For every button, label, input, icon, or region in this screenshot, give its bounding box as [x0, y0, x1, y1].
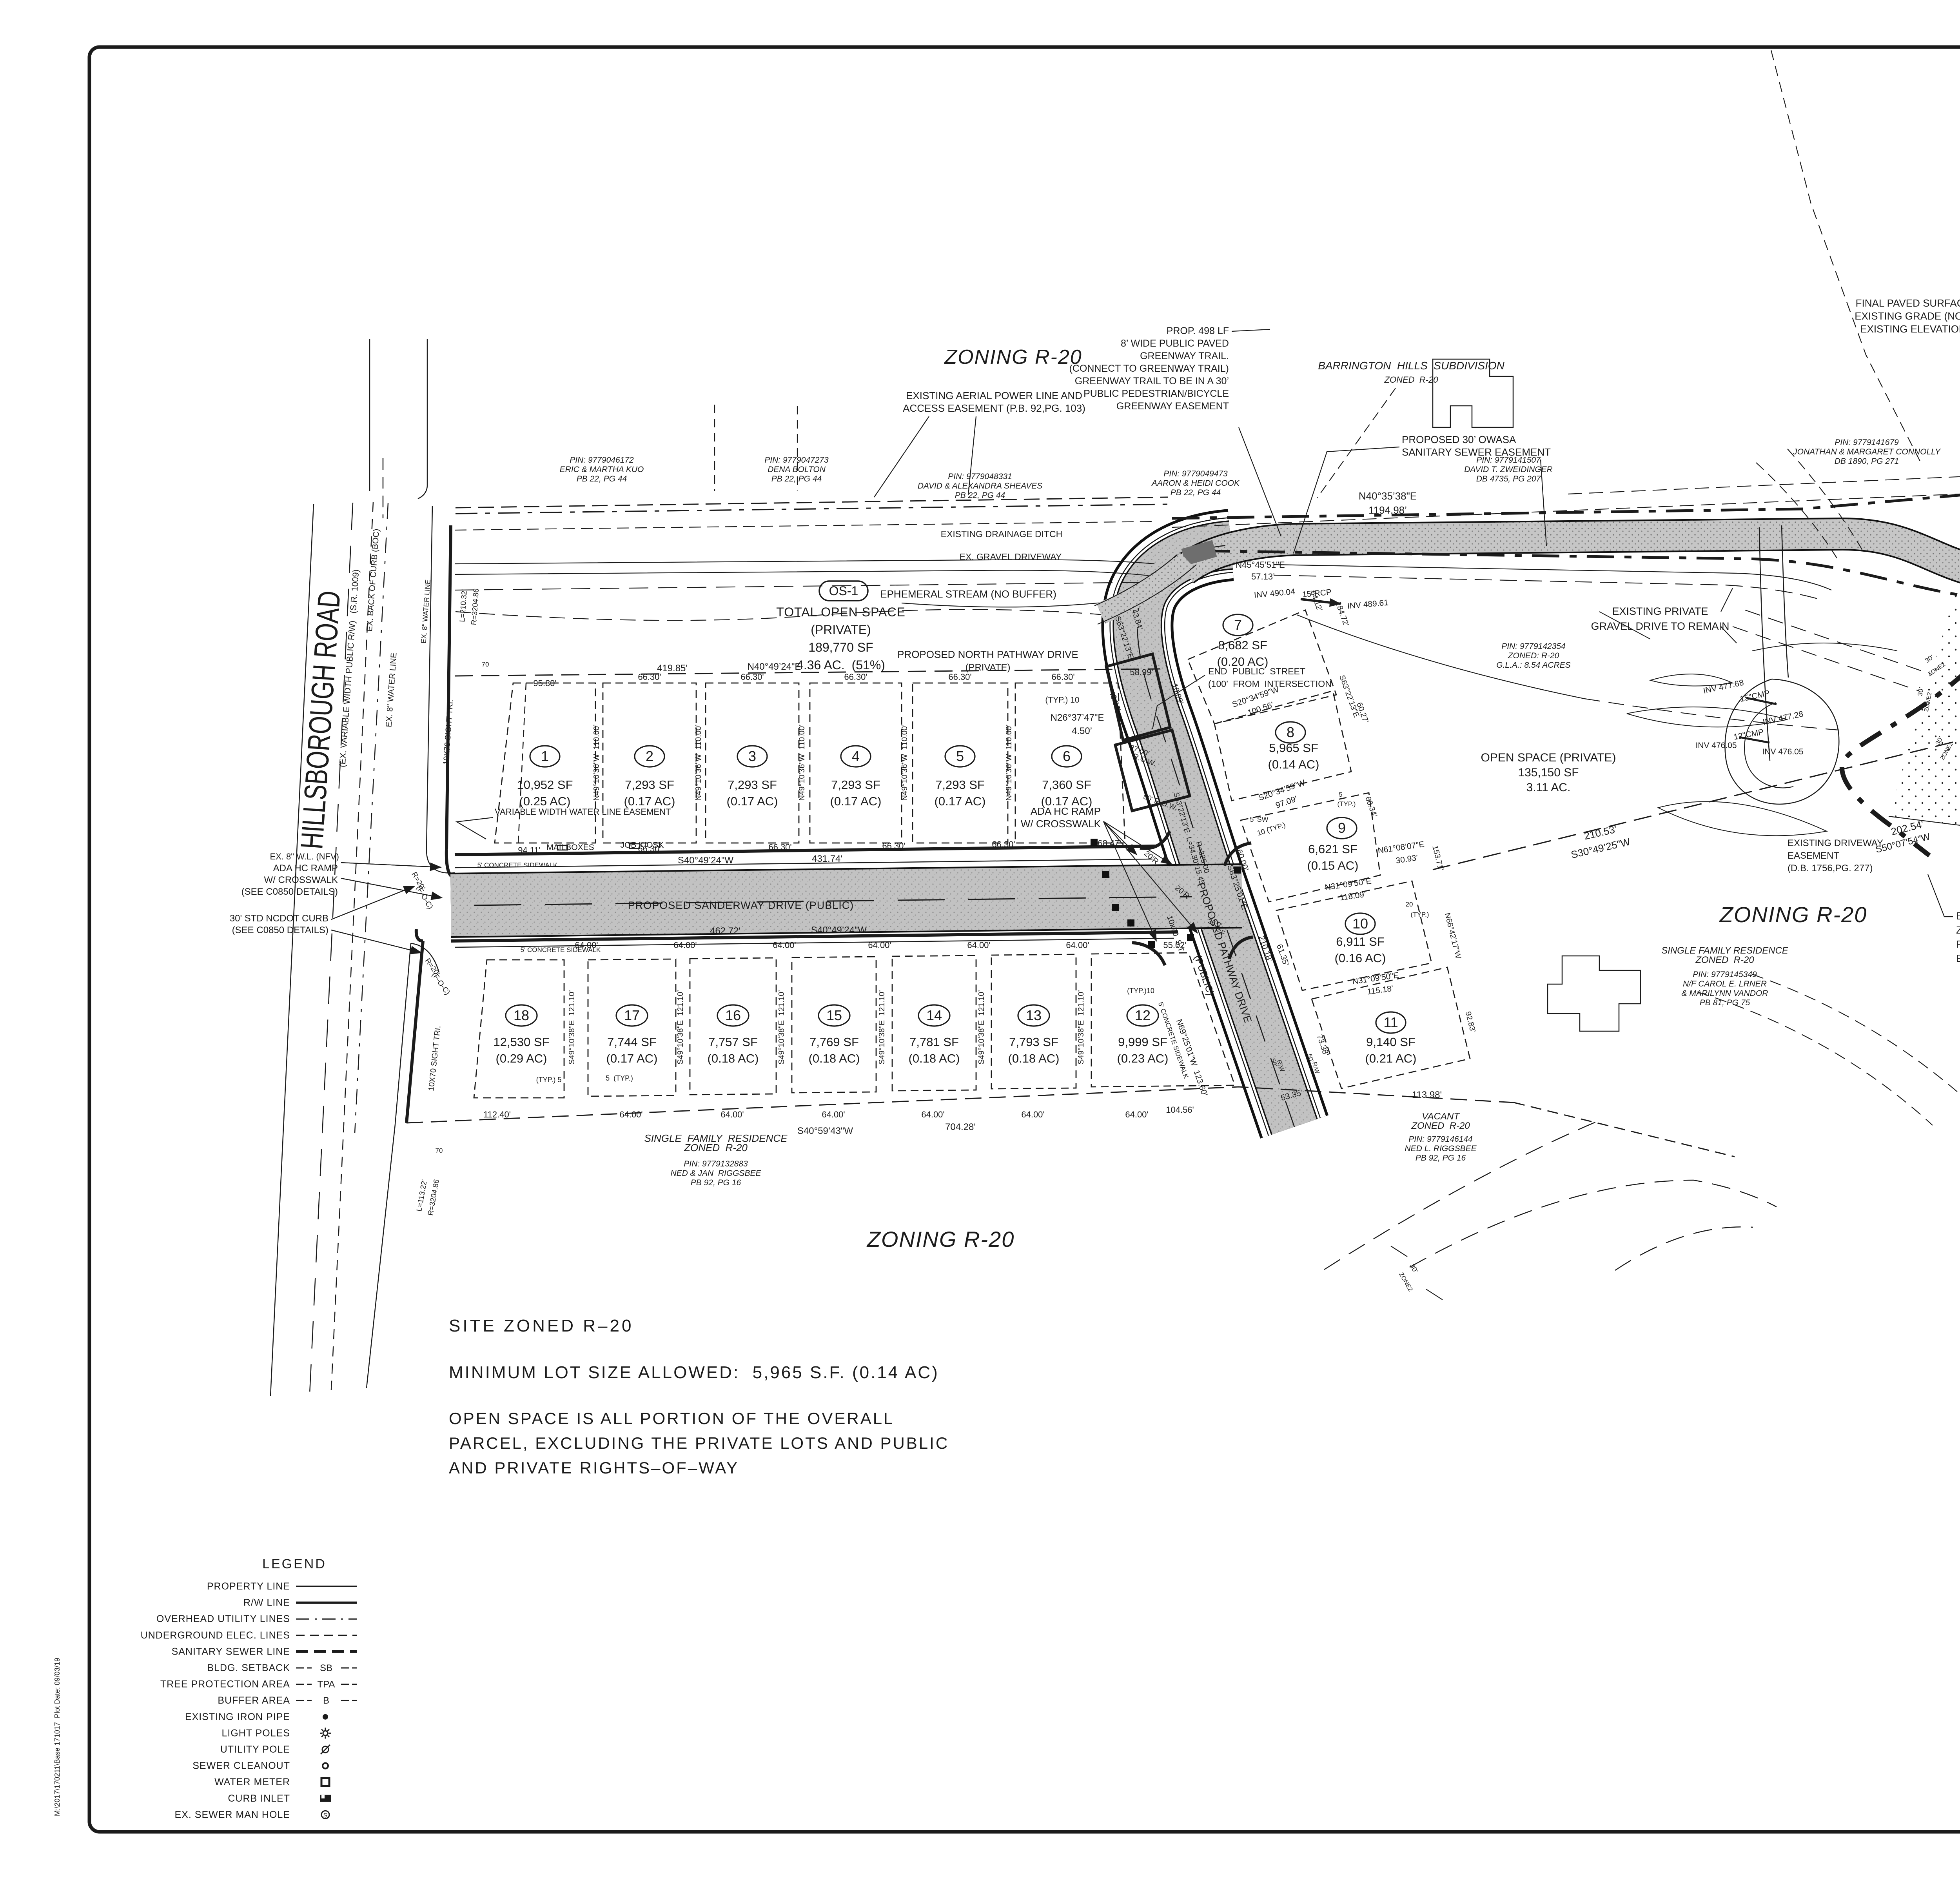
svg-text:(0.14 AC): (0.14 AC)	[1268, 758, 1319, 771]
svg-text:MINIMUM LOT SIZE ALLOWED: 5,9: MINIMUM LOT SIZE ALLOWED: 5,965 S.F. (0.…	[449, 1363, 939, 1382]
svg-text:112.40': 112.40'	[483, 1110, 511, 1119]
svg-text:64.00': 64.00'	[868, 940, 891, 950]
svg-text:PIN: 9779048331: PIN: 9779048331	[948, 472, 1012, 481]
svg-text:(0.16 AC): (0.16 AC)	[1335, 951, 1386, 965]
svg-text:PROP. 498 LF: PROP. 498 LF	[1167, 325, 1229, 336]
svg-text:(0.18 AC): (0.18 AC)	[708, 1052, 759, 1065]
svg-text:DENA BOLTON: DENA BOLTON	[768, 465, 826, 474]
svg-text:M:\2017\170211\Base 171017 Pl: M:\2017\170211\Base 171017 Plot Date: 09…	[53, 1658, 61, 1816]
svg-text:9,140 SF: 9,140 SF	[1366, 1035, 1416, 1049]
svg-text:64.00': 64.00'	[720, 1110, 744, 1119]
svg-text:8’ WIDE PUBLIC PAVED: 8’ WIDE PUBLIC PAVED	[1121, 338, 1229, 349]
svg-text:3.11 AC.: 3.11 AC.	[1526, 781, 1571, 794]
svg-text:66.30': 66.30'	[740, 672, 764, 682]
svg-text:94.11': 94.11'	[518, 845, 541, 855]
svg-text:64.00': 64.00'	[1125, 1110, 1148, 1119]
svg-text:104.56': 104.56'	[1166, 1105, 1194, 1115]
svg-text:70: 70	[436, 1147, 443, 1154]
svg-text:SANITARY SEWER EASEMENT: SANITARY SEWER EASEMENT	[1402, 446, 1551, 458]
svg-text:5' CONCRETE SIDEWALK: 5' CONCRETE SIDEWALK	[477, 861, 558, 869]
svg-text:OVERHEAD UTILITY LINES: OVERHEAD UTILITY LINES	[156, 1613, 290, 1624]
svg-text:N40°35’38"E: N40°35’38"E	[1359, 490, 1417, 502]
svg-text:G.L.A.: 8.54 ACRES: G.L.A.: 8.54 ACRES	[1496, 661, 1570, 670]
svg-text:GREENWAY TRAIL.: GREENWAY TRAIL.	[1140, 351, 1229, 362]
svg-text:7,793 SF: 7,793 SF	[1009, 1035, 1058, 1049]
svg-text:UTILITY POLE: UTILITY POLE	[220, 1744, 290, 1755]
svg-text:(TYP.) 5: (TYP.) 5	[536, 1076, 562, 1084]
svg-text:PARCEL, EXCLUDING THE PRIVATE: PARCEL, EXCLUDING THE PRIVATE LOTS AND P…	[449, 1434, 949, 1452]
svg-text:S49°10’38"E 121.10’: S49°10’38"E 121.10’	[777, 990, 786, 1065]
svg-text:(TYP.)10: (TYP.)10	[1127, 987, 1154, 995]
svg-text:PB 92, PG 16: PB 92, PG 16	[691, 1178, 741, 1187]
svg-text:4.50’: 4.50’	[1072, 726, 1092, 736]
svg-text:(0.17 AC): (0.17 AC)	[935, 794, 986, 808]
svg-text:30’: 30’	[1916, 687, 1925, 697]
svg-text:12,530 SF: 12,530 SF	[493, 1035, 549, 1049]
svg-text:AARON & HEIDI COOK: AARON & HEIDI COOK	[1151, 479, 1240, 488]
svg-text:PROPOSED SANDERWAY DRIVE (PUBL: PROPOSED SANDERWAY DRIVE (PUBLIC)	[628, 899, 854, 911]
svg-text:(D.B. 1756,PG. 277): (D.B. 1756,PG. 277)	[1788, 863, 1873, 874]
svg-text:(0.17 AC): (0.17 AC)	[830, 794, 882, 808]
svg-text:5' CONCRETE SIDEWALK: 5' CONCRETE SIDEWALK	[521, 946, 601, 954]
svg-text:DAVID & ALEXANDRA SHEAVES: DAVID & ALEXANDRA SHEAVES	[918, 481, 1042, 490]
svg-text:PIN: 9779145349: PIN: 9779145349	[1693, 970, 1757, 979]
svg-text:30' STD NCDOT CURB: 30' STD NCDOT CURB	[230, 913, 328, 924]
svg-text:& MARILYNN VANDOR: & MARILYNN VANDOR	[1682, 989, 1768, 998]
svg-text:PIN: 9779142354: PIN: 9779142354	[1501, 642, 1565, 651]
svg-text:9: 9	[1338, 820, 1346, 836]
svg-text:GRAVEL DRIVE TO REMAIN: GRAVEL DRIVE TO REMAIN	[1591, 620, 1729, 632]
svg-text:W/ CROSSWALK: W/ CROSSWALK	[264, 875, 338, 885]
svg-text:(TYP.) 10: (TYP.) 10	[1045, 696, 1079, 705]
svg-text:PIN: 9779046172: PIN: 9779046172	[570, 456, 634, 465]
svg-text:8,682 SF: 8,682 SF	[1218, 638, 1267, 652]
svg-text:UNDERGROUND ELEC. LINES: UNDERGROUND ELEC. LINES	[141, 1630, 290, 1641]
svg-text:PIN: 9779132883: PIN: 9779132883	[684, 1159, 748, 1168]
svg-text:ZONING R-20: ZONING R-20	[866, 1227, 1015, 1252]
svg-text:EXISTING DRAINAGE DITCH: EXISTING DRAINAGE DITCH	[941, 529, 1063, 539]
svg-text:ZONED R-20: ZONED R-20	[1695, 955, 1754, 965]
svg-text:BUFFER AREA: BUFFER AREA	[218, 1695, 290, 1706]
svg-text:N49°10’36"W 110.00’: N49°10’36"W 110.00’	[592, 725, 601, 801]
svg-text:(SEE C0850 DETAILS): (SEE C0850 DETAILS)	[241, 887, 338, 897]
svg-text:7,293 SF: 7,293 SF	[935, 778, 985, 792]
svg-text:PIN: 9779049473: PIN: 9779049473	[1163, 469, 1228, 478]
svg-text:(TYP.): (TYP.)	[1338, 800, 1356, 808]
svg-text:16: 16	[725, 1007, 741, 1023]
svg-text:7,769 SF: 7,769 SF	[809, 1035, 859, 1049]
svg-text:ZONING R-20: ZONING R-20	[1719, 902, 1867, 927]
svg-text:W/ CROSSWALK: W/ CROSSWALK	[1021, 818, 1101, 830]
svg-text:13: 13	[1026, 1007, 1042, 1023]
svg-text:419.85': 419.85'	[657, 663, 688, 674]
svg-text:95.80': 95.80'	[533, 678, 556, 688]
svg-text:LEGEND: LEGEND	[262, 1557, 327, 1571]
svg-text:(TYP.): (TYP.)	[1411, 911, 1429, 918]
svg-text:64.00': 64.00'	[773, 940, 796, 950]
svg-text:PUBLIC PEDESTRIAN/BICYCLE: PUBLIC PEDESTRIAN/BICYCLE	[1083, 388, 1229, 399]
svg-text:8: 8	[1287, 724, 1294, 740]
svg-text:15: 15	[826, 1007, 842, 1023]
svg-text:17: 17	[624, 1007, 640, 1023]
svg-text:(0.25 AC): (0.25 AC)	[519, 794, 571, 808]
svg-text:(0.18 AC): (0.18 AC)	[1008, 1052, 1060, 1065]
svg-text:(0.18 AC): (0.18 AC)	[909, 1052, 960, 1065]
svg-text:S40°49’24"W: S40°49’24"W	[678, 855, 734, 866]
svg-text:7,293 SF: 7,293 SF	[625, 778, 674, 792]
svg-text:20: 20	[1406, 901, 1413, 908]
svg-text:6: 6	[1063, 748, 1071, 764]
svg-text:66.30': 66.30'	[1051, 672, 1074, 682]
svg-text:(0.17 AC): (0.17 AC)	[727, 794, 778, 808]
svg-text:64.00': 64.00'	[673, 940, 697, 950]
svg-text:ZONED R-20: ZONED R-20	[1384, 375, 1439, 385]
svg-text:SB: SB	[320, 1663, 332, 1673]
svg-text:12: 12	[1135, 1007, 1151, 1023]
svg-text:ERIC & MARTHA KUO: ERIC & MARTHA KUO	[560, 465, 644, 474]
svg-text:2: 2	[646, 748, 653, 764]
svg-text:(0.29 AC): (0.29 AC)	[496, 1052, 547, 1065]
svg-text:ZONE AE; ELEV. 475.2: ZONE AE; ELEV. 475.2	[1956, 924, 1960, 936]
svg-text:4.36 AC. (51%): 4.36 AC. (51%)	[797, 658, 885, 672]
svg-text:BLDG. SETBACK: BLDG. SETBACK	[207, 1662, 290, 1673]
svg-text:JOB KIOSK: JOB KIOSK	[621, 841, 664, 850]
svg-text:EX. GRAVEL DRIVEWAY: EX. GRAVEL DRIVEWAY	[960, 552, 1062, 562]
svg-text:N49°10’36"W 110.00’: N49°10’36"W 110.00’	[694, 725, 703, 801]
svg-text:PB 22, PG 44: PB 22, PG 44	[955, 491, 1005, 500]
svg-text:ZONED R-20: ZONED R-20	[684, 1142, 748, 1154]
svg-text:3: 3	[748, 748, 756, 764]
svg-text:S49°10’38"E 121.10’: S49°10’38"E 121.10’	[676, 990, 685, 1065]
svg-text:DB 4735, PG 207: DB 4735, PG 207	[1476, 474, 1541, 483]
svg-text:SEWER CLEANOUT: SEWER CLEANOUT	[192, 1760, 290, 1771]
svg-text:JONATHAN & MARGARET CONNOLLY: JONATHAN & MARGARET CONNOLLY	[1793, 447, 1941, 456]
svg-text:PROPERTY LINE: PROPERTY LINE	[207, 1581, 290, 1592]
svg-text:66.30': 66.30'	[844, 672, 867, 682]
svg-text:PB 81, PG 75: PB 81, PG 75	[1700, 998, 1750, 1007]
svg-text:N26°37’47"E: N26°37’47"E	[1051, 712, 1104, 723]
svg-text:189,770 SF: 189,770 SF	[808, 640, 873, 654]
svg-text:EPHEMERAL STREAM (NO BUFFER): EPHEMERAL STREAM (NO BUFFER)	[880, 588, 1056, 600]
svg-text:7,360 SF: 7,360 SF	[1042, 778, 1091, 792]
svg-text:66.30': 66.30'	[992, 839, 1015, 849]
svg-text:DB 1890, PG 271: DB 1890, PG 271	[1835, 457, 1899, 466]
svg-text:N/F CAROL E. LRNER: N/F CAROL E. LRNER	[1683, 979, 1767, 988]
svg-text:57.13’: 57.13’	[1251, 572, 1275, 581]
svg-text:4: 4	[852, 748, 860, 764]
svg-text:66.30': 66.30'	[882, 841, 905, 851]
svg-text:704.28': 704.28'	[945, 1122, 976, 1132]
svg-text:462.72': 462.72'	[710, 926, 740, 936]
svg-text:EXISTING AERIAL POWER LINE AND: EXISTING AERIAL POWER LINE AND	[906, 390, 1082, 401]
svg-text:GREENWAY TRAIL TO BE IN A 30’: GREENWAY TRAIL TO BE IN A 30’	[1075, 376, 1229, 387]
svg-text:7,757 SF: 7,757 SF	[708, 1035, 758, 1049]
svg-text:64.00': 64.00'	[967, 940, 990, 950]
svg-text:7,293 SF: 7,293 SF	[831, 778, 880, 792]
svg-text:7,781 SF: 7,781 SF	[909, 1035, 959, 1049]
svg-text:OPEN SPACE IS ALL PORTION OF T: OPEN SPACE IS ALL PORTION OF THE OVERALL	[449, 1409, 894, 1428]
svg-text:N49°10’36"W 110.00’: N49°10’36"W 110.00’	[1005, 725, 1013, 801]
svg-text:EXISTING GRADE (NO CHANGE TO: EXISTING GRADE (NO CHANGE TO	[1855, 310, 1960, 322]
svg-text:70: 70	[482, 661, 489, 668]
svg-text:113.98': 113.98'	[1412, 1090, 1442, 1100]
svg-text:B: B	[323, 1695, 329, 1706]
svg-text:(0.17 AC): (0.17 AC)	[606, 1052, 658, 1065]
svg-text:BARRINGTON HILLS SUBDIVISION: BARRINGTON HILLS SUBDIVISION	[1318, 360, 1504, 372]
svg-text:5’ SW: 5’ SW	[1250, 816, 1268, 823]
svg-text:PIN: 9779141679: PIN: 9779141679	[1835, 438, 1899, 447]
svg-text:PB 92, PG 16: PB 92, PG 16	[1416, 1154, 1466, 1163]
svg-text:EX. 8" W.L. (NFV): EX. 8" W.L. (NFV)	[270, 852, 339, 861]
svg-text:66.30': 66.30'	[768, 842, 791, 852]
svg-text:58.99': 58.99'	[1130, 667, 1153, 677]
svg-text:EX. SEWER MAN HOLE: EX. SEWER MAN HOLE	[175, 1809, 290, 1820]
svg-text:INV 476.05: INV 476.05	[1695, 741, 1737, 750]
svg-text:PB 22, PG 44: PB 22, PG 44	[771, 474, 822, 483]
svg-text:R/W LINE: R/W LINE	[243, 1597, 290, 1608]
svg-text:10: 10	[1352, 916, 1368, 932]
svg-text:EXISTING 1.0% CHANCE FLOOD LIN: EXISTING 1.0% CHANCE FLOOD LINE	[1956, 910, 1960, 922]
svg-text:5: 5	[1339, 791, 1342, 798]
svg-text:ZONED R-20: ZONED R-20	[1411, 1121, 1470, 1131]
svg-text:(CONNECT TO GREENWAY TRAIL): (CONNECT TO GREENWAY TRAIL)	[1069, 363, 1229, 374]
svg-text:5 (TYP.): 5 (TYP.)	[606, 1074, 633, 1082]
svg-text:14: 14	[926, 1007, 942, 1023]
svg-text:135,150 SF: 135,150 SF	[1518, 766, 1579, 779]
svg-text:S40°49’24"W: S40°49’24"W	[811, 925, 867, 936]
svg-text:INV 476.05: INV 476.05	[1762, 747, 1803, 756]
svg-text:GREENWAY EASEMENT: GREENWAY EASEMENT	[1116, 401, 1229, 412]
svg-text:EXISTING ELEVATION AT STREAM: EXISTING ELEVATION AT STREAM	[1860, 323, 1960, 335]
svg-text:6,911 SF: 6,911 SF	[1336, 935, 1385, 948]
svg-text:WATER METER: WATER METER	[214, 1777, 290, 1788]
svg-text:NED & JAN RIGGSBEE: NED & JAN RIGGSBEE	[670, 1169, 761, 1178]
svg-text:(0.18 AC): (0.18 AC)	[809, 1052, 860, 1065]
svg-text:S49°10’38"E 121.10’: S49°10’38"E 121.10’	[977, 990, 986, 1065]
svg-text:VACANT: VACANT	[1422, 1111, 1460, 1122]
svg-text:(SEE C0850 DETAILS): (SEE C0850 DETAILS)	[232, 925, 328, 936]
svg-text:5,965 SF: 5,965 SF	[1269, 741, 1318, 755]
svg-text:PB 22, PG 44: PB 22, PG 44	[577, 474, 627, 483]
svg-text:FINAL PAVED SURFACE TO MATCH: FINAL PAVED SURFACE TO MATCH	[1856, 297, 1960, 309]
svg-text:PIN: 9779146144: PIN: 9779146144	[1408, 1135, 1472, 1144]
svg-text:10,952 SF: 10,952 SF	[517, 778, 573, 792]
svg-text:64.00': 64.00'	[619, 1110, 642, 1119]
svg-text:ZONING R-20: ZONING R-20	[944, 346, 1082, 369]
svg-text:SINGLE FAMILY RESIDENCE: SINGLE FAMILY RESIDENCE	[1661, 945, 1789, 956]
svg-text:VARIABLE WIDTH WATER LINE EASE: VARIABLE WIDTH WATER LINE EASEMENT	[495, 807, 671, 817]
svg-text:EXISTING IRON PIPE: EXISTING IRON PIPE	[185, 1711, 290, 1722]
svg-text:PROPOSED 30’ OWASA: PROPOSED 30’ OWASA	[1402, 434, 1516, 445]
svg-text:END PUBLIC STREET: END PUBLIC STREET	[1208, 666, 1305, 676]
svg-text:64.00': 64.00'	[1066, 940, 1089, 950]
svg-text:(PRIVATE): (PRIVATE)	[811, 623, 871, 637]
svg-text:ZONED: R-20: ZONED: R-20	[1508, 651, 1559, 660]
svg-text:TREE PROTECTION AREA: TREE PROTECTION AREA	[160, 1679, 290, 1690]
svg-text:68.47': 68.47'	[1098, 838, 1121, 848]
svg-text:EXISTING DRIVEWAY: EXISTING DRIVEWAY	[1788, 838, 1883, 848]
svg-text:FIRM 3710977900K: FIRM 3710977900K	[1956, 938, 1960, 950]
svg-text:(0.23 AC): (0.23 AC)	[1117, 1052, 1169, 1065]
svg-text:64.00': 64.00'	[1021, 1110, 1044, 1119]
svg-text:6,621 SF: 6,621 SF	[1308, 842, 1357, 856]
svg-text:66.30': 66.30'	[948, 672, 971, 682]
svg-text:PIN: 9779047273: PIN: 9779047273	[764, 456, 829, 465]
svg-text:1: 1	[541, 748, 549, 764]
svg-text:66.30': 66.30'	[638, 672, 661, 682]
svg-text:ADA HC RAMP: ADA HC RAMP	[273, 863, 338, 874]
svg-text:S: S	[323, 1812, 328, 1819]
svg-text:7: 7	[1234, 617, 1242, 633]
svg-text:LIGHT POLES: LIGHT POLES	[222, 1728, 290, 1738]
svg-text:TPA: TPA	[318, 1679, 335, 1690]
svg-text:ADA HC RAMP: ADA HC RAMP	[1031, 805, 1101, 817]
svg-text:EFFECTIVE DATE 11/17/2017: EFFECTIVE DATE 11/17/2017	[1956, 952, 1960, 964]
svg-text:OPEN SPACE (PRIVATE): OPEN SPACE (PRIVATE)	[1481, 751, 1616, 764]
svg-text:11: 11	[1383, 1014, 1398, 1030]
svg-text:7,744 SF: 7,744 SF	[607, 1035, 657, 1049]
svg-text:CURB INLET: CURB INLET	[228, 1793, 290, 1804]
svg-text:7,293 SF: 7,293 SF	[728, 778, 777, 792]
svg-text:(0.15 AC): (0.15 AC)	[1307, 859, 1359, 872]
svg-text:1194.98’: 1194.98’	[1368, 504, 1407, 516]
svg-text:SANITARY SEWER LINE: SANITARY SEWER LINE	[172, 1646, 290, 1657]
svg-text:N40°49’24"E: N40°49’24"E	[748, 661, 801, 672]
svg-text:N49°10’36"W 110.00’: N49°10’36"W 110.00’	[798, 725, 806, 801]
svg-text:5: 5	[956, 748, 964, 764]
svg-text:MAILBOXES: MAILBOXES	[546, 843, 594, 852]
svg-text:64.00': 64.00'	[822, 1110, 845, 1119]
svg-text:S49°10’38"E 121.10’: S49°10’38"E 121.10’	[568, 990, 576, 1065]
svg-text:18: 18	[514, 1007, 529, 1023]
svg-text:S40°59’43"W: S40°59’43"W	[797, 1126, 853, 1136]
svg-text:431.74': 431.74'	[812, 854, 842, 864]
svg-text:AND PRIVATE RIGHTS–OF–WAY: AND PRIVATE RIGHTS–OF–WAY	[449, 1459, 739, 1477]
svg-text:NED L. RIGGSBEE: NED L. RIGGSBEE	[1405, 1144, 1477, 1153]
svg-text:S49°10’38"E 121.10’: S49°10’38"E 121.10’	[878, 990, 886, 1065]
svg-text:(0.21 AC): (0.21 AC)	[1365, 1052, 1417, 1065]
svg-text:PROPOSED NORTH PATHWAY DRIVE: PROPOSED NORTH PATHWAY DRIVE	[897, 649, 1078, 660]
svg-text:(0.17 AC): (0.17 AC)	[624, 794, 675, 808]
svg-text:DAVID T. ZWEIDINGER: DAVID T. ZWEIDINGER	[1464, 465, 1553, 474]
svg-text:PB 22, PG 44: PB 22, PG 44	[1171, 488, 1221, 497]
svg-text:S49°10’38"E 121.10’: S49°10’38"E 121.10’	[1077, 990, 1085, 1065]
svg-text:SITE ZONED R–20: SITE ZONED R–20	[449, 1316, 633, 1335]
svg-text:EXISTING PRIVATE: EXISTING PRIVATE	[1612, 605, 1708, 617]
svg-text:55.02': 55.02'	[1163, 940, 1186, 950]
svg-text:EASEMENT: EASEMENT	[1788, 850, 1839, 861]
svg-text:N49°10’36"W 110.00’: N49°10’36"W 110.00’	[900, 725, 909, 801]
svg-text:ACCESS EASEMENT (P.B. 92,PG. 1: ACCESS EASEMENT (P.B. 92,PG. 103)	[903, 402, 1085, 414]
svg-text:N45°45’51"E: N45°45’51"E	[1236, 560, 1285, 570]
svg-text:9,999 SF: 9,999 SF	[1118, 1035, 1167, 1049]
svg-text:64.00': 64.00'	[921, 1110, 944, 1119]
